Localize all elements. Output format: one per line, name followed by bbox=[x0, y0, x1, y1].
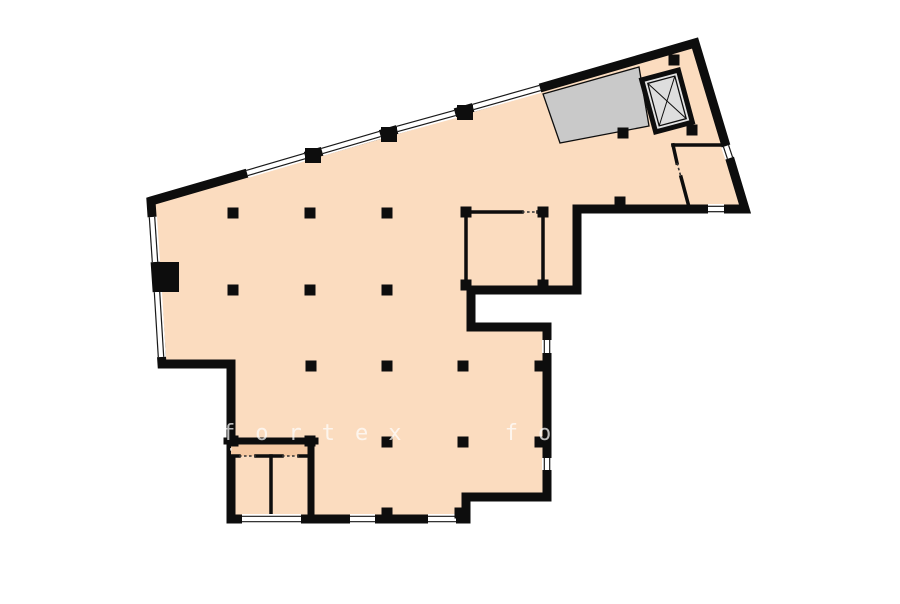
column bbox=[382, 508, 393, 519]
column bbox=[382, 208, 393, 219]
column bbox=[306, 361, 317, 372]
wall-pier bbox=[155, 262, 179, 292]
wall-pier bbox=[457, 105, 473, 120]
column bbox=[305, 208, 316, 219]
column bbox=[618, 128, 629, 139]
column bbox=[458, 361, 469, 372]
column bbox=[615, 197, 626, 208]
column bbox=[228, 208, 239, 219]
wall-pier bbox=[381, 127, 397, 142]
column bbox=[228, 285, 239, 296]
column bbox=[538, 207, 549, 218]
column bbox=[382, 285, 393, 296]
column bbox=[305, 285, 316, 296]
watermark-text: fortex fortex bbox=[222, 421, 704, 446]
column bbox=[382, 361, 393, 372]
column bbox=[535, 361, 546, 372]
wall-pier bbox=[305, 148, 321, 163]
column bbox=[538, 280, 549, 291]
column bbox=[455, 508, 466, 519]
floor-plan-page: fortex fortex bbox=[0, 0, 900, 604]
column bbox=[687, 125, 698, 136]
column bbox=[669, 55, 680, 66]
column bbox=[461, 207, 472, 218]
floor-plan: fortex fortex bbox=[0, 0, 900, 604]
column bbox=[461, 280, 472, 291]
window-cover bbox=[152, 217, 155, 262]
